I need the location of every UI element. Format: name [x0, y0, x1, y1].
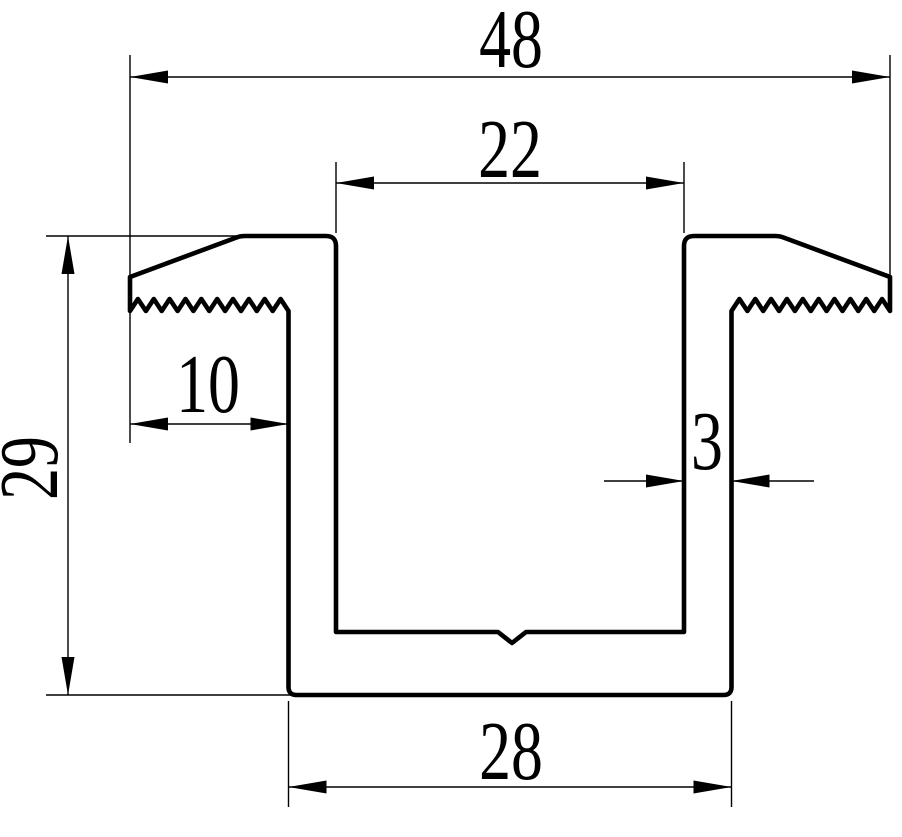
arrow-right-icon: [251, 418, 289, 431]
flange-width-label: 10: [176, 339, 240, 431]
drawing-canvas: 48 22 10 3 29 28: [0, 0, 902, 837]
arrow-left-icon: [336, 177, 374, 190]
overall-width-label: 48: [479, 0, 543, 86]
base-width-label: 28: [479, 706, 543, 798]
dimension-overall-height: 29: [0, 236, 76, 695]
overall-height-label: 29: [0, 436, 76, 500]
profile-outline: [130, 236, 890, 695]
arrow-left-icon: [130, 418, 168, 431]
arrow-right-icon: [694, 781, 732, 794]
arrow-left-icon: [732, 475, 770, 488]
arrow-right-icon: [646, 475, 684, 488]
dimension-base-width: 28: [289, 706, 732, 798]
dimension-channel-width: 22: [336, 104, 684, 196]
channel-width-label: 22: [478, 104, 542, 196]
dimension-wall-thickness: 3: [604, 396, 814, 488]
arrow-left-icon: [289, 781, 327, 794]
wall-thickness-label: 3: [691, 396, 723, 488]
arrow-up-icon: [62, 236, 75, 274]
dimension-flange-width: 10: [130, 339, 289, 431]
arrow-down-icon: [62, 657, 75, 695]
arrow-right-icon: [852, 71, 890, 84]
dimension-overall-width: 48: [130, 0, 890, 86]
technical-drawing: 48 22 10 3 29 28: [0, 0, 902, 837]
arrow-left-icon: [130, 71, 168, 84]
arrow-right-icon: [646, 177, 684, 190]
